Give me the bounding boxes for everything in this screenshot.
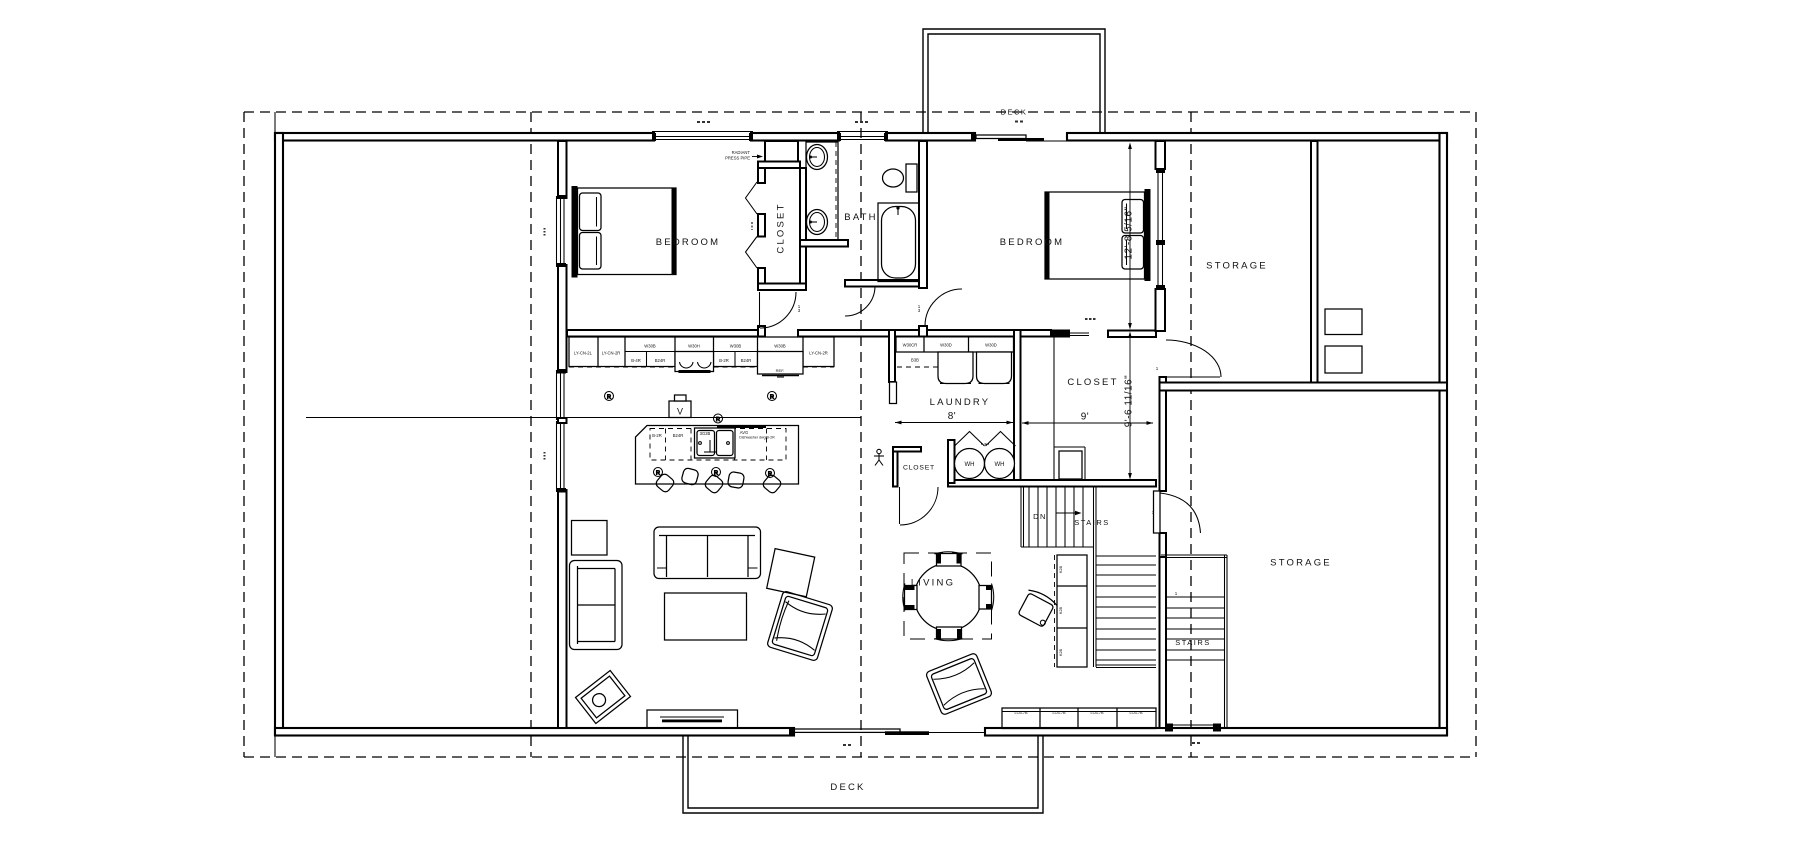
- svg-text:B24R: B24R: [741, 358, 751, 363]
- svg-text:B24R: B24R: [655, 358, 665, 363]
- svg-text:W30H: W30H: [688, 344, 700, 349]
- svg-text:REF.: REF.: [776, 368, 785, 373]
- svg-text:B24R: B24R: [673, 433, 683, 438]
- svg-text:RADIANT: RADIANT: [732, 150, 751, 155]
- svg-text:V: V: [677, 407, 683, 417]
- svg-text:DN: DN: [1033, 512, 1047, 521]
- svg-text:STORAGE: STORAGE: [1270, 558, 1332, 569]
- svg-text:B-2R: B-2R: [652, 433, 662, 438]
- svg-text:Dishwasher dwg|B-2R: Dishwasher dwg|B-2R: [739, 436, 775, 440]
- svg-text:STORAGE: STORAGE: [1206, 261, 1268, 272]
- svg-text:R: R: [770, 395, 774, 401]
- svg-text:WH: WH: [965, 462, 975, 468]
- svg-text:K2B: K2B: [1059, 565, 1063, 573]
- svg-text:W30B: W30B: [774, 344, 786, 349]
- svg-text:8': 8': [948, 411, 956, 422]
- svg-text:B-4R: B-4R: [631, 358, 641, 363]
- svg-text:3G2B: 3G2B: [700, 431, 711, 436]
- svg-text:W30D: W30D: [985, 343, 997, 348]
- svg-text:LAUNDRY: LAUNDRY: [930, 397, 991, 408]
- svg-text:R: R: [768, 472, 772, 478]
- svg-text:DECK: DECK: [830, 782, 865, 793]
- svg-text:BATH: BATH: [844, 212, 877, 223]
- svg-text:LY-CN-2R: LY-CN-2R: [809, 351, 828, 356]
- svg-text:CLOSET: CLOSET: [1067, 377, 1118, 388]
- svg-text:B-2R: B-2R: [719, 358, 729, 363]
- svg-text:LY-CN-2L: LY-CN-2L: [574, 351, 593, 356]
- svg-text:K2B: K2B: [1059, 648, 1063, 656]
- svg-text:B3B: B3B: [911, 358, 919, 363]
- svg-text:W30B: W30B: [730, 344, 742, 349]
- svg-text:W30B: W30B: [644, 344, 656, 349]
- svg-text:BEDROOM: BEDROOM: [1000, 237, 1065, 248]
- svg-text:CLOSET: CLOSET: [776, 202, 787, 253]
- svg-text:9'-6 11/16": 9'-6 11/16": [1124, 375, 1135, 427]
- svg-text:12'-8 5/16": 12'-8 5/16": [1124, 206, 1135, 259]
- svg-text:WH: WH: [995, 462, 1005, 468]
- svg-text:W30D: W30D: [940, 343, 952, 348]
- svg-text:R: R: [656, 471, 660, 477]
- svg-text:LY-CN-2R: LY-CN-2R: [602, 351, 621, 356]
- svg-text:PRESS PIPE: PRESS PIPE: [725, 156, 750, 161]
- svg-text:LIVING: LIVING: [911, 578, 955, 589]
- svg-text:K2B: K2B: [1059, 606, 1063, 614]
- svg-text:W30CR: W30CR: [903, 343, 918, 348]
- svg-text:R: R: [607, 395, 611, 401]
- svg-text:DECK: DECK: [1001, 108, 1028, 117]
- svg-text:CLOSET: CLOSET: [903, 465, 935, 472]
- svg-text:STAIRS: STAIRS: [1074, 518, 1110, 527]
- svg-text:BEDROOM: BEDROOM: [656, 237, 721, 248]
- svg-text:STAIRS: STAIRS: [1175, 638, 1211, 647]
- svg-text:R: R: [714, 471, 718, 477]
- svg-text:9': 9': [1081, 412, 1089, 423]
- svg-text:AVG: AVG: [740, 430, 749, 435]
